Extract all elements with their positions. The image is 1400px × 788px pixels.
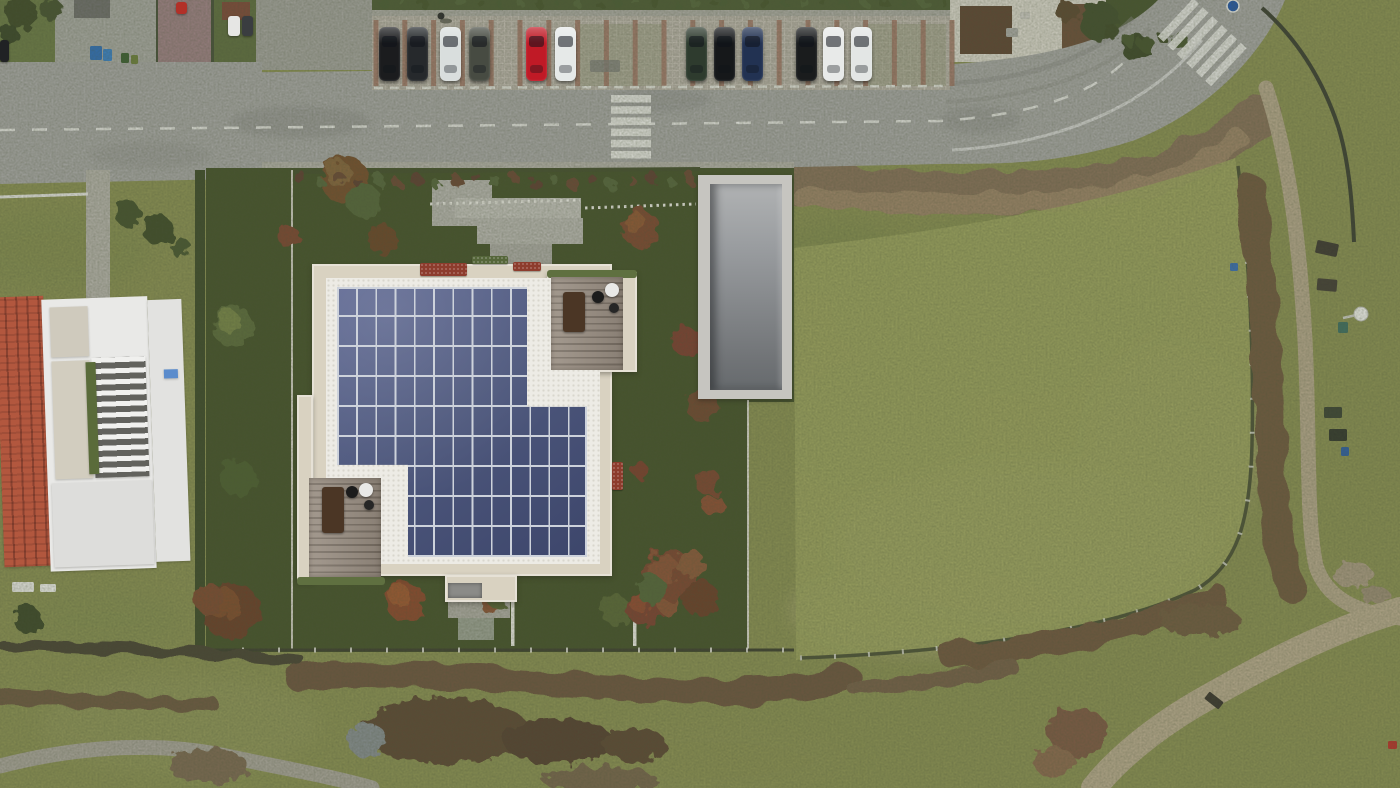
car-windshield: [689, 36, 704, 47]
car-rear-glass: [827, 65, 840, 73]
parked-car: [851, 27, 872, 81]
parked-car-small: [228, 16, 240, 36]
deck-table: [346, 486, 358, 498]
car-windshield: [529, 36, 544, 47]
car-windshield: [799, 36, 814, 47]
car-windshield: [410, 36, 425, 47]
car-rear-glass: [800, 65, 813, 73]
car-windshield: [854, 36, 869, 47]
car-windshield: [382, 36, 397, 47]
car-windshield: [558, 36, 573, 47]
car-windshield: [472, 36, 487, 47]
garage-ramp: [710, 184, 782, 390]
parked-car: [686, 27, 707, 81]
car-rear-glass: [411, 65, 424, 73]
parked-car: [407, 27, 428, 81]
deck-hedge: [297, 577, 385, 585]
deck-table: [605, 283, 619, 297]
planter-red-a: [420, 263, 467, 276]
parked-car: [469, 27, 490, 81]
car-windshield: [443, 36, 458, 47]
parked-car: [526, 27, 547, 81]
car-windshield: [717, 36, 732, 47]
parked-car-small: [0, 40, 9, 62]
deck-table: [359, 483, 373, 497]
car-rear-glass: [855, 65, 868, 73]
deck-table: [609, 303, 619, 313]
deck-lounger: [322, 487, 344, 533]
car-rear-glass: [746, 65, 759, 73]
car-rear-glass: [530, 65, 543, 73]
pergola-beams: [91, 356, 149, 478]
lower-terrace: [52, 480, 155, 567]
car-rear-glass: [559, 65, 572, 73]
car-rear-glass: [718, 65, 731, 73]
car-rear-glass: [473, 65, 486, 73]
render-overlay: [0, 0, 1400, 788]
entrance-pad: [448, 583, 482, 598]
car-rear-glass: [383, 65, 396, 73]
aerial-photo: [0, 0, 1400, 788]
neighbour-villa: [0, 283, 195, 587]
parked-car: [796, 27, 817, 81]
car-rear-glass: [444, 65, 457, 73]
parked-car: [742, 27, 763, 81]
deck-table: [364, 500, 374, 510]
deck-lounger: [563, 292, 585, 332]
planter-green: [472, 256, 508, 264]
car-windshield: [745, 36, 760, 47]
parked-car-small: [242, 16, 253, 36]
parked-car: [555, 27, 576, 81]
upper-gravel-court: [50, 306, 90, 357]
car-rear-glass: [690, 65, 703, 73]
parked-car: [823, 27, 844, 81]
deck-table: [592, 291, 604, 303]
planter-red-east: [612, 462, 623, 490]
parked-car-small: [176, 2, 187, 14]
car-windshield: [826, 36, 841, 47]
planter-red-b: [513, 262, 541, 271]
blue-tarp: [164, 369, 178, 378]
parked-car: [440, 27, 461, 81]
parked-car: [379, 27, 400, 81]
parked-car: [714, 27, 735, 81]
